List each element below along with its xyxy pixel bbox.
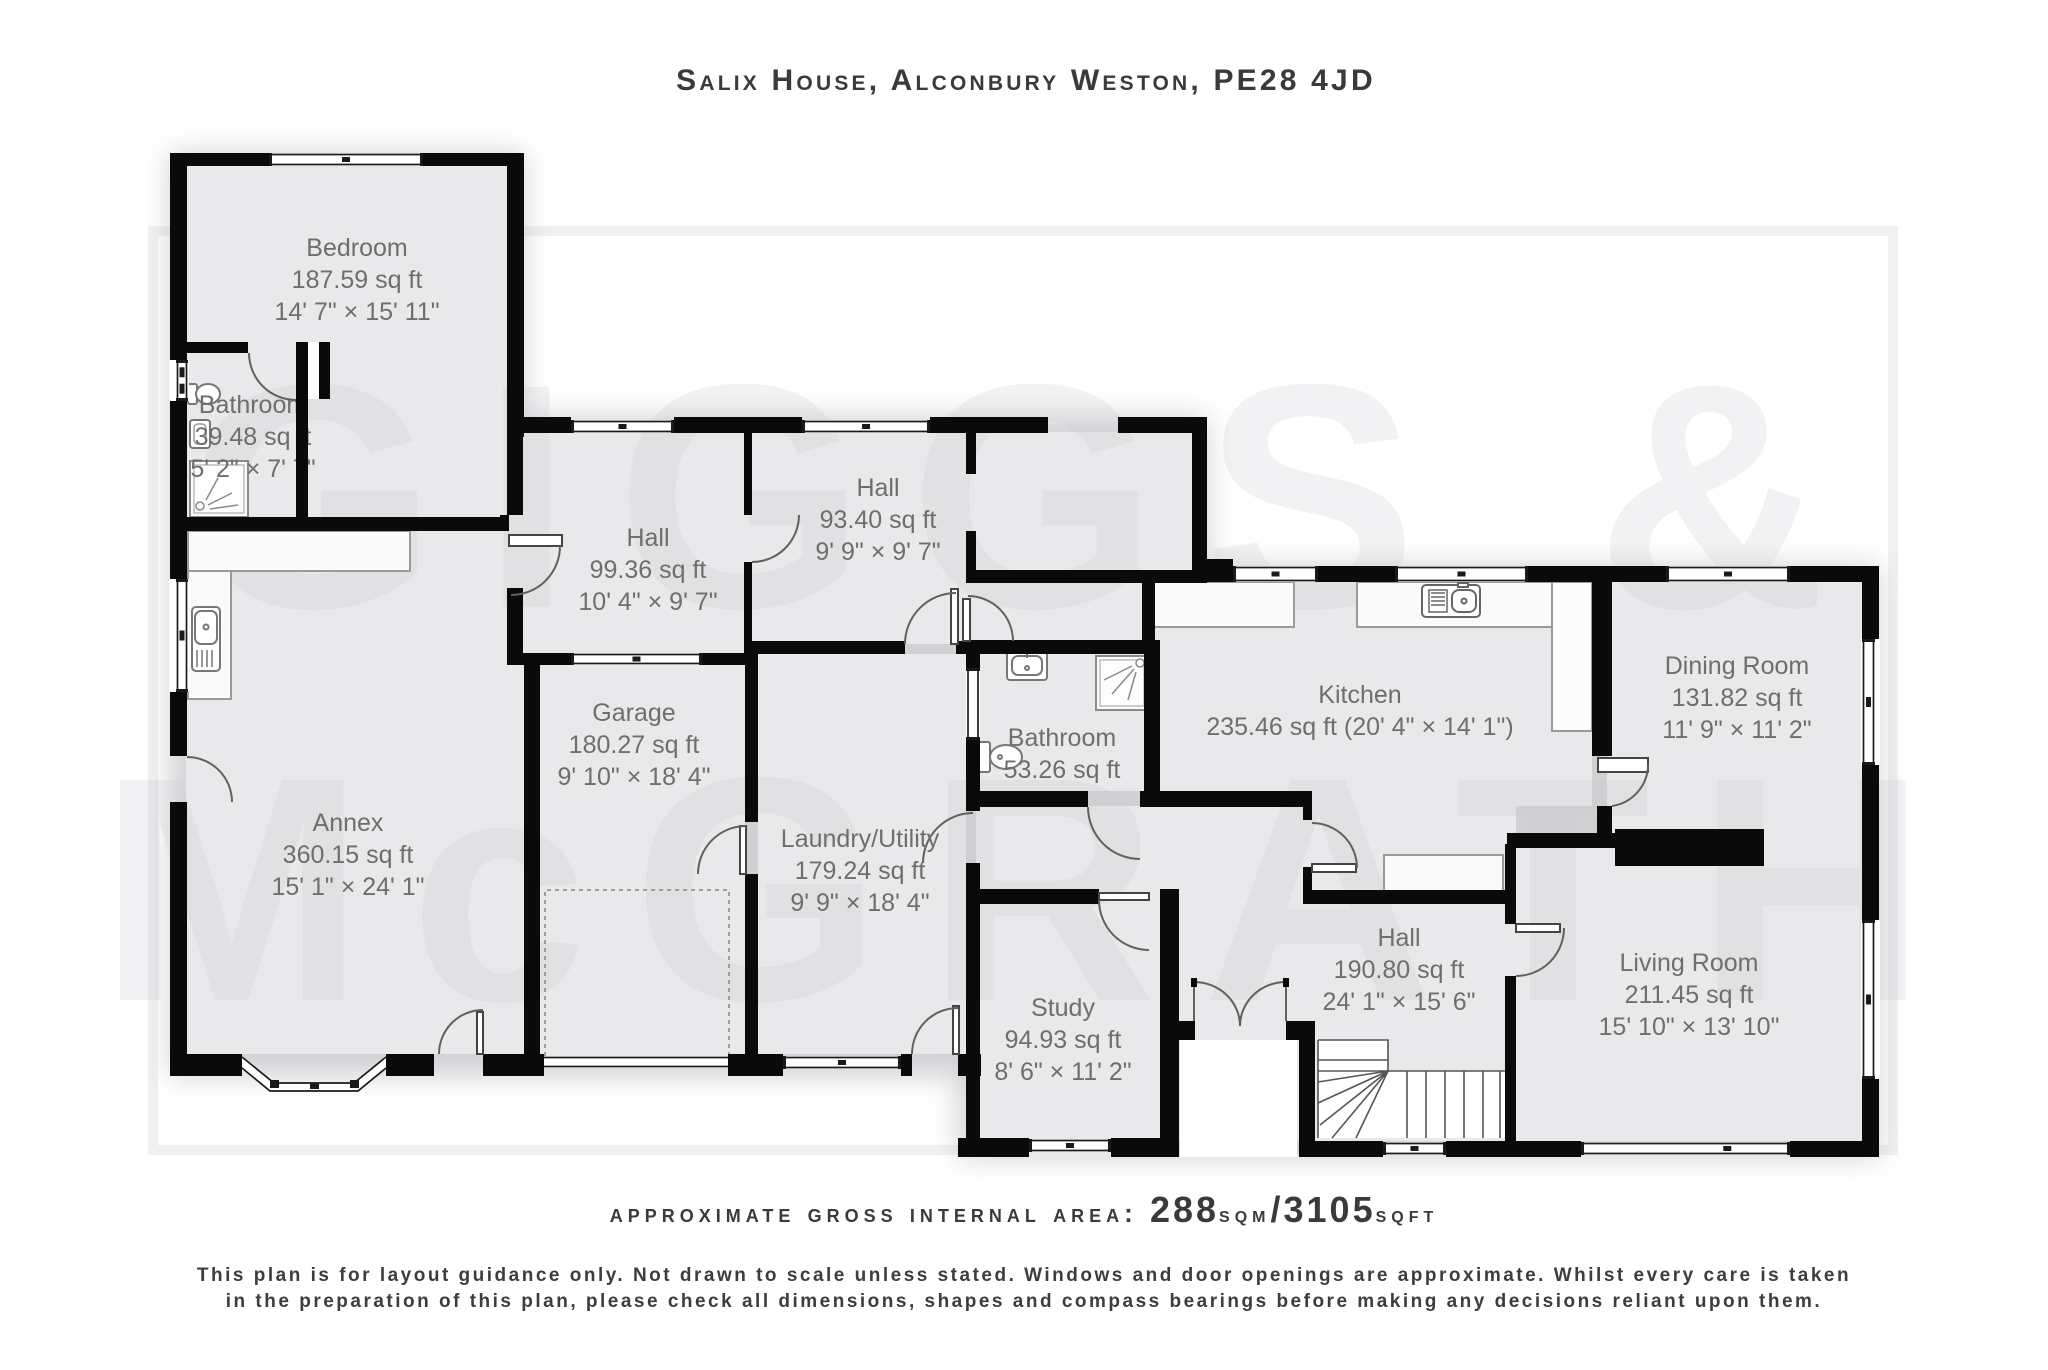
svg-text:in the preparation of this pla: in the preparation of this plan, please … (226, 1291, 1822, 1312)
svg-text:GIGGS &: GIGGS & (188, 317, 1872, 675)
svg-text:This plan is for layout guidan: This plan is for layout guidance only. N… (197, 1265, 1851, 1286)
svg-text:Laundry/Utility179.24 sq ft9': Laundry/Utility179.24 sq ft9' 9" × 18' 4… (781, 825, 940, 917)
svg-text:Dining Room131.82 sq ft11' 9": Dining Room131.82 sq ft11' 9" × 11' 2" (1662, 652, 1811, 744)
svg-text:Living Room211.45 sq ft15' 10": Living Room211.45 sq ft15' 10" × 13' 10" (1599, 949, 1780, 1041)
svg-text:Salix House, Alconbury Weston,: Salix House, Alconbury Weston, PE28 4JD (676, 64, 1376, 97)
